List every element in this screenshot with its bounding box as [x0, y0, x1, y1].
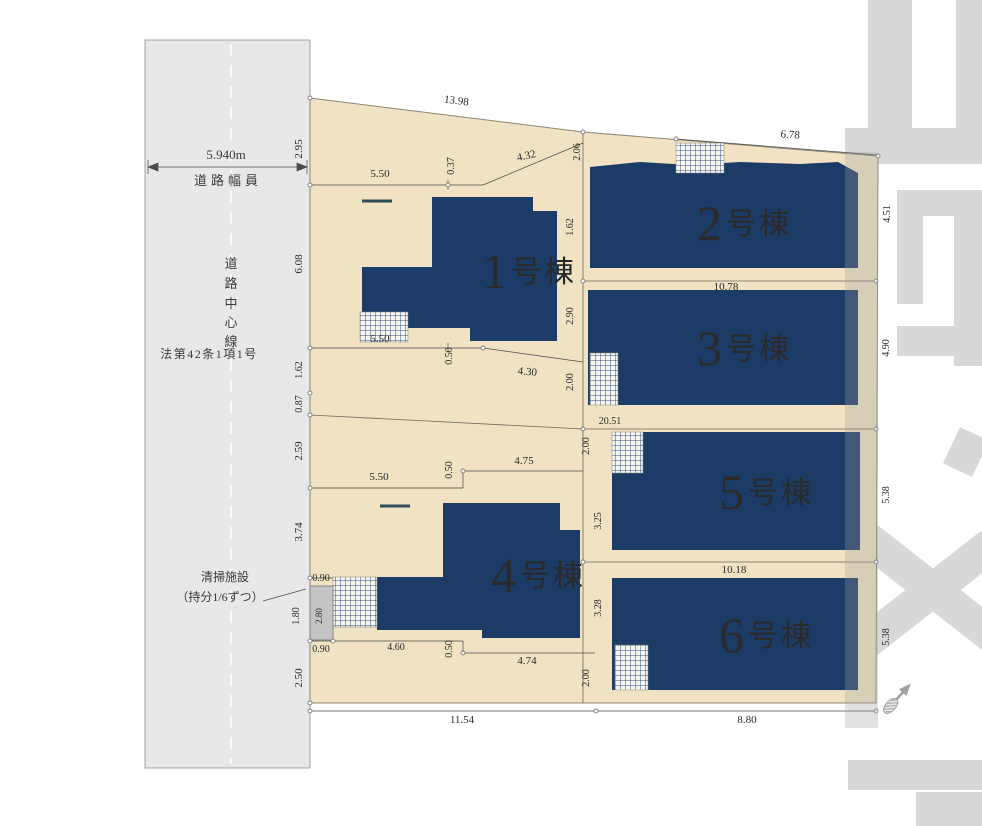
dim-b6-right: 5.38: [881, 628, 892, 646]
road-width-caption: 道路幅員: [194, 173, 262, 188]
road-width-label: 5.940m: [206, 147, 245, 162]
dim-mid-c: 2.00: [581, 437, 592, 455]
watermark-overlay-strip: [845, 152, 878, 728]
building-1-number: 1: [482, 243, 507, 299]
dim-bottom-right: 8.80: [737, 714, 757, 726]
building-2-footprint: [590, 162, 858, 268]
dim-b1-top-w: 5.50: [370, 168, 390, 180]
dim-top-left-height: 2.95: [293, 139, 305, 159]
dim-row23: 10.78: [714, 281, 739, 293]
hatch-area-building-2: [676, 143, 724, 173]
hatch-area-building-6: [615, 645, 648, 690]
hatch-area-building-4: [333, 577, 377, 627]
dim-row35: 20.51: [599, 416, 622, 427]
building-5-number: 5: [719, 464, 744, 520]
site-plan-page: 13.98 2.95 5.50 0.37 4.32 2.06 6.78 4.51…: [0, 0, 982, 826]
dim-b1-top-gap: 0.37: [446, 157, 457, 175]
dim-b5-left: 3.25: [593, 512, 604, 530]
road-centerline-char-3: 心: [224, 315, 237, 330]
building-2-suffix: 号棟: [726, 208, 792, 241]
building-6-number: 6: [719, 607, 744, 663]
dim-b1-bot-w: 5.50: [370, 333, 390, 345]
dim-b4-top-w: 5.50: [369, 471, 389, 483]
facility-label-line2: （持分1/6ずつ）: [176, 589, 263, 604]
dim-left-e: 2.50: [293, 668, 305, 688]
facility-label-line1: 清掃施設: [201, 569, 249, 584]
dim-b3-right: 4.90: [881, 339, 892, 357]
road-centerline-char-2: 中: [224, 296, 237, 311]
building-3-number: 3: [697, 320, 722, 376]
building-4-number: 4: [491, 547, 516, 603]
dim-fac-inner: 2.80: [314, 608, 324, 624]
dim-b4-top-e: 4.75: [514, 455, 534, 467]
dim-b4-bot-e: 4.74: [517, 655, 537, 667]
dim-left-d: 3.74: [293, 522, 305, 542]
dim-b2-right: 4.51: [882, 205, 893, 223]
dim-left-b: 0.87: [294, 395, 305, 413]
building-6-suffix: 号棟: [748, 620, 814, 653]
dim-b1-bot-gap: 0.50: [444, 347, 455, 365]
building-2-number: 2: [697, 195, 722, 251]
dim-row56: 10.18: [722, 564, 747, 576]
dim-fac-top: 0.90: [312, 573, 330, 584]
dim-b2-top: 6.78: [780, 128, 801, 141]
dim-b4-bot-w: 4.60: [387, 642, 405, 653]
road-centerline-char-1: 路: [224, 276, 237, 291]
hatch-area-building-3: [590, 353, 618, 405]
dim-left-a: 1.62: [294, 361, 305, 379]
dim-fac-side: 1.80: [291, 607, 302, 625]
dim-b1-bot-e: 4.30: [517, 365, 538, 379]
north-arrow-icon: [881, 680, 915, 716]
dim-b5-right: 5.38: [881, 486, 892, 504]
building-3-suffix: 号棟: [726, 333, 792, 366]
building-5-suffix: 号棟: [748, 477, 814, 510]
dim-b4-bot-gap: 0.50: [444, 640, 455, 658]
dim-b6-left: 3.28: [593, 599, 604, 617]
hatch-area-building-5: [612, 432, 643, 473]
dim-top-total: 13.98: [443, 94, 470, 109]
dim-mid-d: 2.00: [581, 669, 592, 687]
dim-mid-top: 2.06: [572, 143, 583, 161]
building-3-footprint: [588, 290, 858, 405]
dim-mid-a: 2.90: [565, 307, 576, 325]
dim-left-c: 2.59: [293, 441, 305, 461]
dim-left-b1: 6.08: [293, 254, 305, 274]
road-law-label: 法第42条1項1号: [160, 347, 258, 361]
dim-mid-b: 2.00: [565, 373, 576, 391]
site-plan-drawing: 13.98 2.95 5.50 0.37 4.32 2.06 6.78 4.51…: [0, 0, 982, 826]
dim-bottom-left: 11.54: [450, 714, 475, 726]
building-4-suffix: 号棟: [520, 560, 586, 593]
building-1-suffix: 号棟: [511, 256, 577, 289]
dim-b4-top-gap: 0.50: [444, 461, 455, 479]
road-centerline-char-0: 道: [224, 256, 237, 271]
dim-mid-b1-b2: 1.62: [565, 218, 576, 236]
dim-fac-bot: 0.90: [312, 644, 330, 655]
